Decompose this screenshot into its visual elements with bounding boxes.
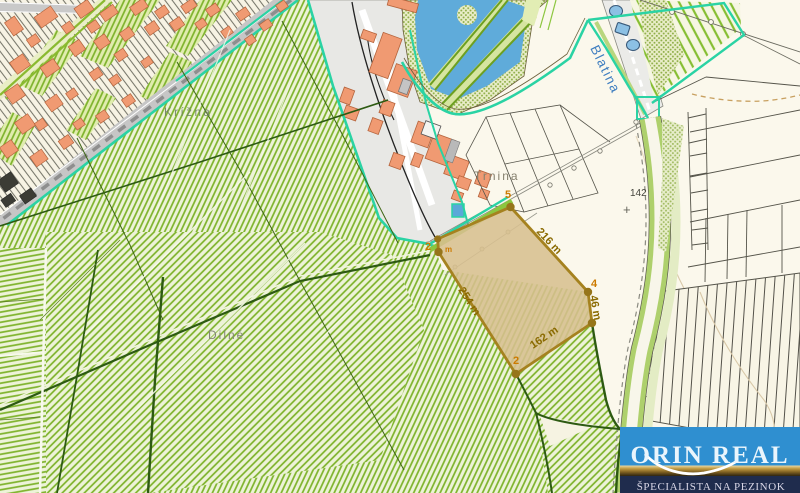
svg-text:m: m: [445, 245, 452, 254]
svg-text:ŠPECIALISTA NA PEZINOK: ŠPECIALISTA NA PEZINOK: [637, 481, 786, 493]
svg-text:Dilné: Dilné: [208, 328, 245, 342]
svg-text:142: 142: [630, 188, 647, 199]
svg-text:ORIN REAL: ORIN REAL: [631, 442, 790, 469]
svg-text:+: +: [623, 202, 631, 217]
svg-text:Krížna: Krížna: [164, 107, 212, 119]
svg-text:5: 5: [505, 189, 511, 201]
svg-text:2: 2: [425, 241, 431, 253]
svg-text:2: 2: [513, 355, 519, 367]
svg-text:4: 4: [591, 278, 598, 290]
svg-text:Trnina: Trnina: [474, 169, 520, 183]
